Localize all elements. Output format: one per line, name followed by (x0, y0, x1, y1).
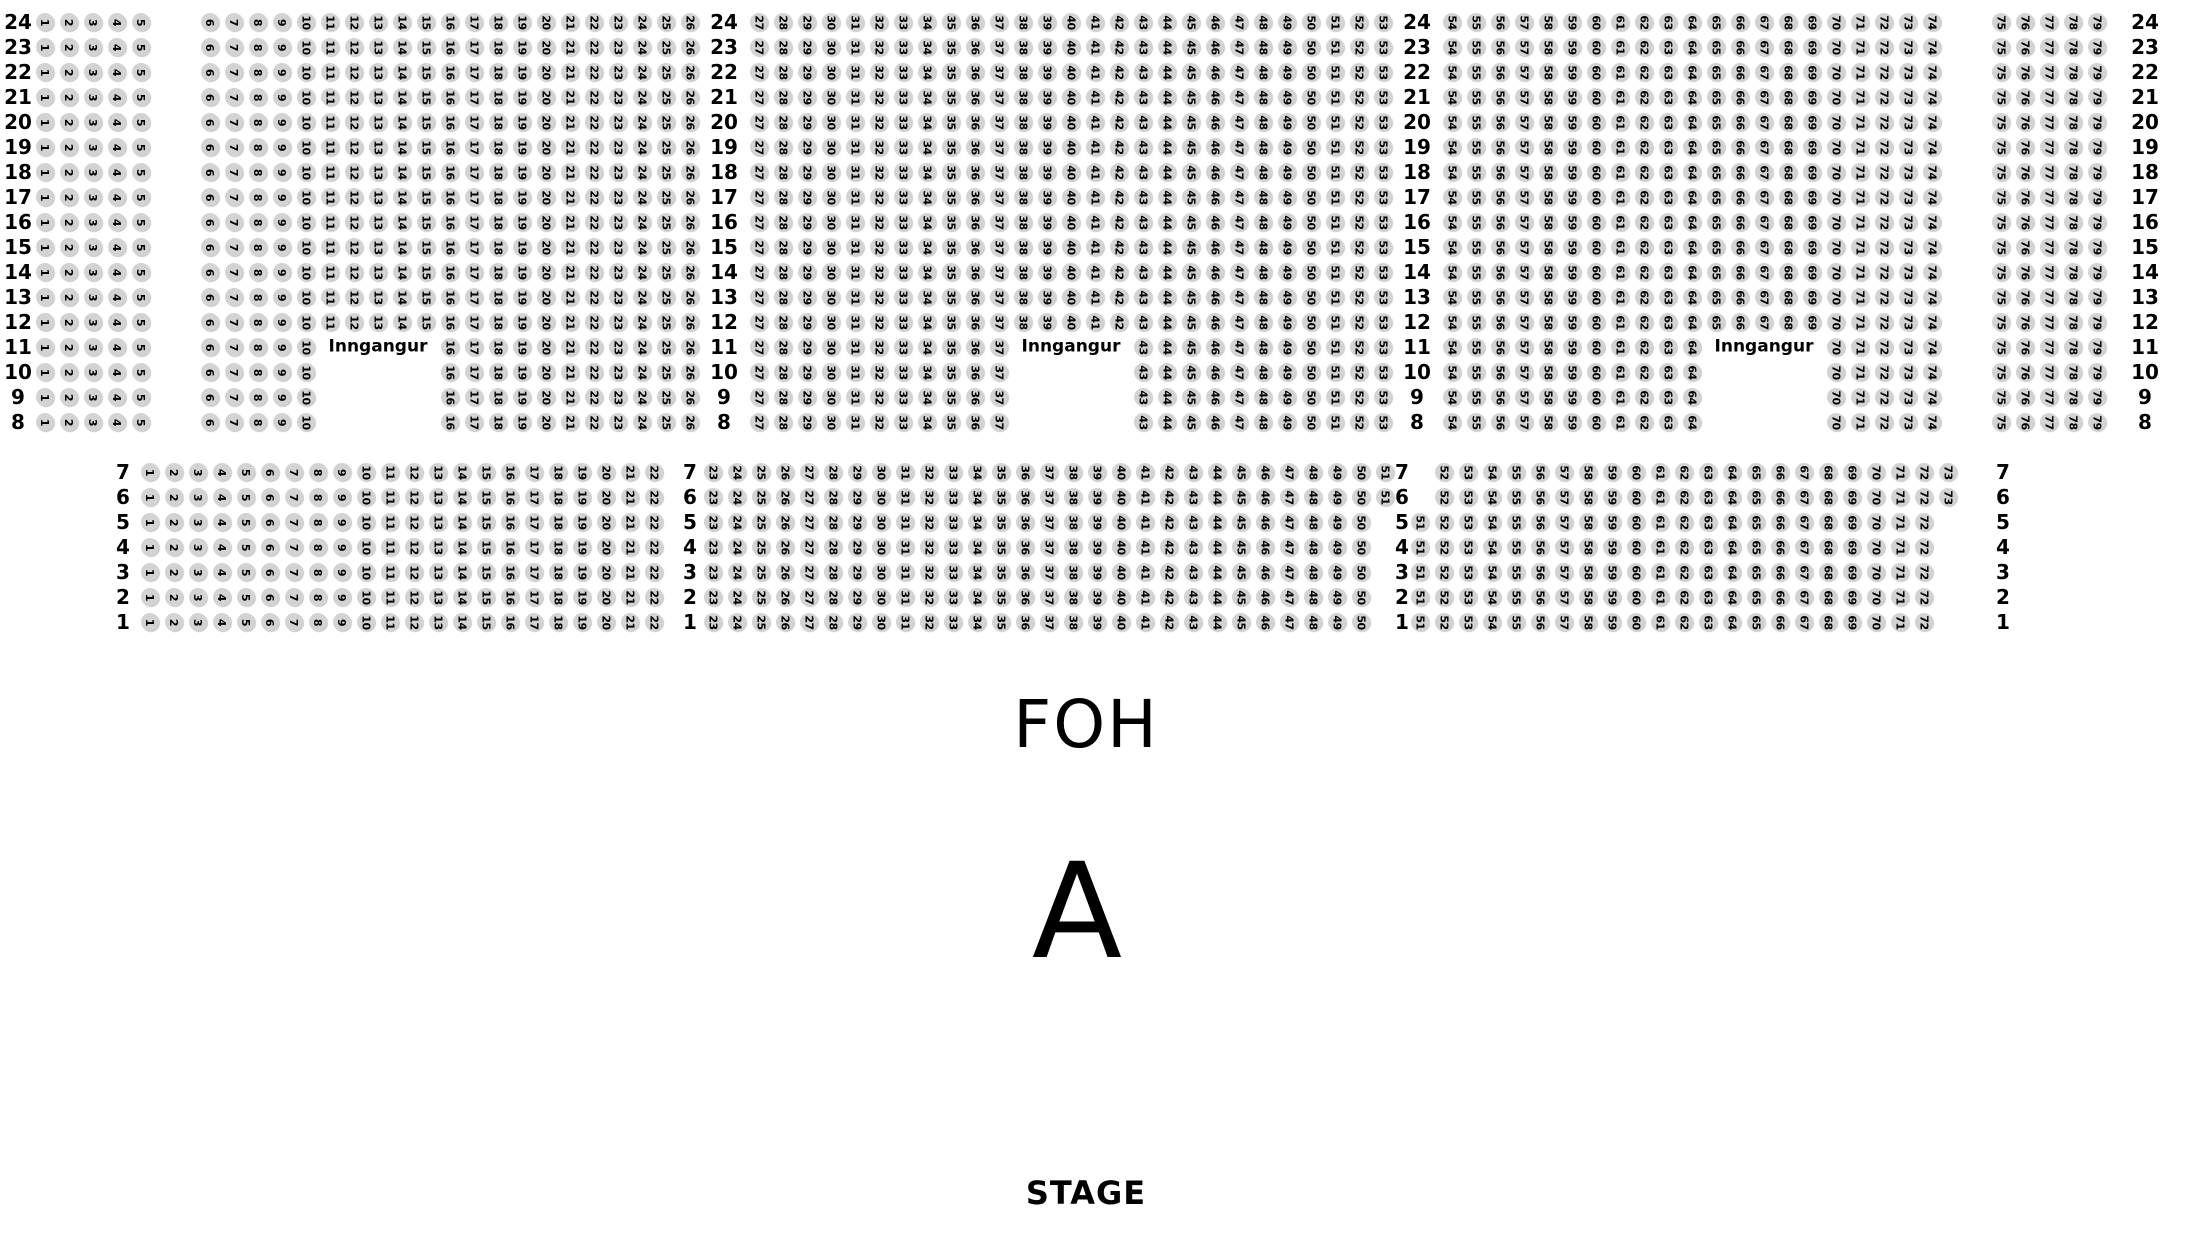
seat[interactable]: 41 (1136, 463, 1154, 481)
seat[interactable]: 65 (1747, 588, 1765, 606)
seat[interactable]: 12 (405, 613, 423, 631)
seat[interactable]: 32 (920, 513, 938, 531)
seat[interactable]: 72 (1915, 463, 1933, 481)
seat[interactable]: 64 (1723, 488, 1741, 506)
seat[interactable]: 65 (1747, 513, 1765, 531)
seat[interactable]: 1 (141, 488, 159, 506)
seat[interactable]: 28 (824, 588, 842, 606)
seat[interactable]: 6 (261, 538, 279, 556)
seat[interactable]: 25 (752, 538, 770, 556)
seat[interactable]: 55 (1507, 588, 1525, 606)
seat[interactable]: 17 (525, 588, 543, 606)
seat[interactable]: 54 (1483, 463, 1501, 481)
seat[interactable]: 9 (333, 563, 351, 581)
seat[interactable]: 38 (1064, 513, 1082, 531)
seat[interactable]: 33 (944, 588, 962, 606)
seat[interactable]: 3 (189, 488, 207, 506)
seat[interactable]: 60 (1627, 463, 1645, 481)
seat[interactable]: 25 (752, 463, 770, 481)
seat[interactable]: 31 (896, 488, 914, 506)
seat[interactable]: 8 (309, 488, 327, 506)
seat[interactable]: 62 (1675, 513, 1693, 531)
seat[interactable]: 8 (309, 613, 327, 631)
seat[interactable]: 68 (1819, 488, 1837, 506)
seat[interactable]: 2 (165, 588, 183, 606)
seat[interactable]: 53 (1459, 488, 1477, 506)
seat[interactable]: 61 (1651, 613, 1669, 631)
seat[interactable]: 29 (848, 538, 866, 556)
seat[interactable]: 37 (1040, 513, 1058, 531)
seat[interactable]: 4 (213, 538, 231, 556)
seat[interactable]: 40 (1112, 463, 1130, 481)
seat[interactable]: 57 (1555, 563, 1573, 581)
seat[interactable]: 43 (1184, 563, 1202, 581)
seat[interactable]: 21 (621, 613, 639, 631)
seat[interactable]: 24 (728, 563, 746, 581)
seat[interactable]: 73 (1939, 463, 1957, 481)
seat[interactable]: 44 (1208, 538, 1226, 556)
seat[interactable]: 48 (1304, 463, 1322, 481)
seat[interactable]: 24 (728, 513, 746, 531)
seat[interactable]: 47 (1280, 463, 1298, 481)
seat[interactable]: 39 (1088, 588, 1106, 606)
seat[interactable]: 58 (1579, 613, 1597, 631)
seat[interactable]: 20 (597, 538, 615, 556)
seat[interactable]: 18 (549, 463, 567, 481)
seat[interactable]: 17 (525, 613, 543, 631)
seat[interactable]: 49 (1328, 613, 1346, 631)
seat[interactable]: 43 (1184, 588, 1202, 606)
seat[interactable]: 58 (1579, 488, 1597, 506)
seat[interactable]: 59 (1603, 563, 1621, 581)
seat[interactable]: 48 (1304, 513, 1322, 531)
seat[interactable]: 60 (1627, 588, 1645, 606)
seat[interactable]: 68 (1819, 538, 1837, 556)
seat[interactable]: 36 (1016, 463, 1034, 481)
seat[interactable]: 16 (501, 513, 519, 531)
seat[interactable]: 5 (237, 588, 255, 606)
seat[interactable]: 72 (1915, 588, 1933, 606)
seat[interactable]: 22 (645, 613, 663, 631)
seat[interactable]: 18 (549, 613, 567, 631)
seat[interactable]: 67 (1795, 613, 1813, 631)
seat[interactable]: 1 (141, 563, 159, 581)
seat[interactable]: 32 (920, 488, 938, 506)
seat[interactable]: 27 (800, 588, 818, 606)
seat[interactable]: 37 (1040, 488, 1058, 506)
seat[interactable]: 45 (1232, 538, 1250, 556)
seat[interactable]: 66 (1771, 538, 1789, 556)
seat[interactable]: 56 (1531, 488, 1549, 506)
seat[interactable]: 64 (1723, 463, 1741, 481)
seat[interactable]: 37 (1040, 563, 1058, 581)
seat[interactable]: 50 (1352, 488, 1370, 506)
seat[interactable]: 21 (621, 463, 639, 481)
seat[interactable]: 12 (405, 488, 423, 506)
seat[interactable]: 27 (800, 463, 818, 481)
seat[interactable]: 59 (1603, 588, 1621, 606)
seat[interactable]: 26 (776, 588, 794, 606)
seat[interactable]: 31 (896, 463, 914, 481)
seat[interactable]: 23 (704, 513, 722, 531)
seat[interactable]: 20 (597, 563, 615, 581)
seat[interactable]: 22 (645, 588, 663, 606)
seat[interactable]: 24 (728, 488, 746, 506)
seat[interactable]: 5 (237, 513, 255, 531)
seat[interactable]: 42 (1160, 563, 1178, 581)
seat[interactable]: 28 (824, 613, 842, 631)
seat[interactable]: 72 (1915, 538, 1933, 556)
seat[interactable]: 52 (1435, 513, 1453, 531)
seat[interactable]: 36 (1016, 538, 1034, 556)
seat[interactable]: 33 (944, 488, 962, 506)
seat[interactable]: 23 (704, 588, 722, 606)
seat[interactable]: 50 (1352, 613, 1370, 631)
seat[interactable]: 66 (1771, 588, 1789, 606)
seat[interactable]: 22 (645, 563, 663, 581)
seat[interactable]: 48 (1304, 613, 1322, 631)
seat[interactable]: 62 (1675, 538, 1693, 556)
seat[interactable]: 67 (1795, 588, 1813, 606)
seat[interactable]: 47 (1280, 588, 1298, 606)
seat[interactable]: 31 (896, 563, 914, 581)
seat[interactable]: 45 (1232, 613, 1250, 631)
seat[interactable]: 50 (1352, 563, 1370, 581)
seat[interactable]: 41 (1136, 488, 1154, 506)
seat[interactable]: 28 (824, 513, 842, 531)
seat[interactable]: 18 (549, 513, 567, 531)
seat[interactable]: 53 (1459, 538, 1477, 556)
seat[interactable]: 10 (357, 538, 375, 556)
seat[interactable]: 6 (261, 588, 279, 606)
seat[interactable]: 69 (1843, 463, 1861, 481)
seat[interactable]: 9 (333, 588, 351, 606)
seat[interactable]: 9 (333, 538, 351, 556)
seat[interactable]: 43 (1184, 513, 1202, 531)
seat[interactable]: 59 (1603, 513, 1621, 531)
seat[interactable]: 35 (992, 613, 1010, 631)
seat[interactable]: 40 (1112, 613, 1130, 631)
seat[interactable]: 28 (824, 563, 842, 581)
seat[interactable]: 28 (824, 488, 842, 506)
seat[interactable]: 21 (621, 538, 639, 556)
seat[interactable]: 65 (1747, 538, 1765, 556)
seat[interactable]: 63 (1699, 488, 1717, 506)
seat[interactable]: 32 (920, 563, 938, 581)
seat[interactable]: 27 (800, 513, 818, 531)
seat[interactable]: 45 (1232, 463, 1250, 481)
seat[interactable]: 14 (453, 613, 471, 631)
seat[interactable]: 43 (1184, 463, 1202, 481)
seat[interactable]: 38 (1064, 488, 1082, 506)
seat[interactable]: 51 (1411, 513, 1429, 531)
seat[interactable]: 6 (261, 488, 279, 506)
seat[interactable]: 60 (1627, 513, 1645, 531)
seat[interactable]: 21 (621, 563, 639, 581)
seat[interactable]: 71 (1891, 563, 1909, 581)
seat[interactable]: 57 (1555, 588, 1573, 606)
seat[interactable]: 28 (824, 538, 842, 556)
seat[interactable]: 6 (261, 563, 279, 581)
seat[interactable]: 7 (285, 613, 303, 631)
seat[interactable]: 58 (1579, 563, 1597, 581)
seat[interactable]: 49 (1328, 538, 1346, 556)
seat[interactable]: 40 (1112, 588, 1130, 606)
seat[interactable]: 23 (704, 538, 722, 556)
seat[interactable]: 45 (1232, 488, 1250, 506)
seat[interactable]: 37 (1040, 538, 1058, 556)
seat[interactable]: 62 (1675, 563, 1693, 581)
seat[interactable]: 52 (1435, 588, 1453, 606)
seat[interactable]: 33 (944, 513, 962, 531)
seat[interactable]: 16 (501, 538, 519, 556)
seat[interactable]: 69 (1843, 613, 1861, 631)
seat[interactable]: 33 (944, 463, 962, 481)
seat[interactable]: 16 (501, 563, 519, 581)
seat[interactable]: 72 (1915, 513, 1933, 531)
seat[interactable]: 39 (1088, 563, 1106, 581)
seat[interactable]: 70 (1867, 563, 1885, 581)
seat[interactable]: 35 (992, 588, 1010, 606)
seat[interactable]: 50 (1352, 463, 1370, 481)
seat[interactable]: 20 (597, 513, 615, 531)
seat[interactable]: 42 (1160, 513, 1178, 531)
seat[interactable]: 67 (1795, 513, 1813, 531)
seat[interactable]: 5 (237, 613, 255, 631)
seat[interactable]: 30 (872, 538, 890, 556)
seat[interactable]: 7 (285, 588, 303, 606)
seat[interactable]: 56 (1531, 588, 1549, 606)
seat[interactable]: 30 (872, 563, 890, 581)
seat[interactable]: 56 (1531, 538, 1549, 556)
seat[interactable]: 4 (213, 513, 231, 531)
seat[interactable]: 11 (381, 463, 399, 481)
seat[interactable]: 66 (1771, 613, 1789, 631)
seat[interactable]: 3 (189, 588, 207, 606)
seat[interactable]: 45 (1232, 513, 1250, 531)
seat[interactable]: 13 (429, 463, 447, 481)
seat[interactable]: 2 (165, 463, 183, 481)
seat[interactable]: 13 (429, 563, 447, 581)
seat[interactable]: 39 (1088, 613, 1106, 631)
seat[interactable]: 33 (944, 563, 962, 581)
seat[interactable]: 11 (381, 588, 399, 606)
seat[interactable]: 46 (1256, 488, 1274, 506)
seat[interactable]: 22 (645, 488, 663, 506)
seat[interactable]: 54 (1483, 538, 1501, 556)
seat[interactable]: 60 (1627, 563, 1645, 581)
seat[interactable]: 20 (597, 588, 615, 606)
seat[interactable]: 35 (992, 513, 1010, 531)
seat[interactable]: 72 (1915, 613, 1933, 631)
seat[interactable]: 2 (165, 488, 183, 506)
seat[interactable]: 4 (213, 488, 231, 506)
seat[interactable]: 9 (333, 613, 351, 631)
seat[interactable]: 30 (872, 463, 890, 481)
seat[interactable]: 60 (1627, 488, 1645, 506)
seat[interactable]: 47 (1280, 538, 1298, 556)
seat[interactable]: 70 (1867, 538, 1885, 556)
seat[interactable]: 9 (333, 488, 351, 506)
seat[interactable]: 5 (237, 538, 255, 556)
seat[interactable]: 9 (333, 463, 351, 481)
seat[interactable]: 31 (896, 513, 914, 531)
seat[interactable]: 61 (1651, 563, 1669, 581)
seat[interactable]: 14 (453, 538, 471, 556)
seat[interactable]: 17 (525, 513, 543, 531)
seat[interactable]: 31 (896, 588, 914, 606)
seat[interactable]: 46 (1256, 613, 1274, 631)
seat[interactable]: 36 (1016, 588, 1034, 606)
seat[interactable]: 65 (1747, 463, 1765, 481)
seat[interactable]: 71 (1891, 513, 1909, 531)
seat[interactable]: 20 (597, 488, 615, 506)
seat[interactable]: 57 (1555, 613, 1573, 631)
seat[interactable]: 18 (549, 588, 567, 606)
seat[interactable]: 12 (405, 538, 423, 556)
seat[interactable]: 66 (1771, 513, 1789, 531)
seat[interactable]: 46 (1256, 463, 1274, 481)
seat[interactable]: 1 (141, 588, 159, 606)
seat[interactable]: 26 (776, 563, 794, 581)
seat[interactable]: 10 (357, 488, 375, 506)
seat[interactable]: 62 (1675, 488, 1693, 506)
seat[interactable]: 10 (357, 613, 375, 631)
seat[interactable]: 34 (968, 588, 986, 606)
seat[interactable]: 53 (1459, 613, 1477, 631)
seat[interactable]: 38 (1064, 538, 1082, 556)
seat[interactable]: 3 (189, 613, 207, 631)
seat[interactable]: 4 (213, 563, 231, 581)
seat[interactable]: 26 (776, 538, 794, 556)
seat[interactable]: 34 (968, 488, 986, 506)
seat[interactable]: 8 (309, 463, 327, 481)
seat[interactable]: 7 (285, 538, 303, 556)
seat[interactable]: 30 (872, 488, 890, 506)
seat[interactable]: 11 (381, 513, 399, 531)
seat[interactable]: 51 (1411, 563, 1429, 581)
seat[interactable]: 49 (1328, 488, 1346, 506)
seat[interactable]: 25 (752, 488, 770, 506)
seat[interactable]: 68 (1819, 513, 1837, 531)
seat[interactable]: 3 (189, 538, 207, 556)
seat[interactable]: 69 (1843, 488, 1861, 506)
seat[interactable]: 48 (1304, 488, 1322, 506)
seat[interactable]: 51 (1376, 488, 1394, 506)
seat[interactable]: 11 (381, 613, 399, 631)
seat[interactable]: 17 (525, 563, 543, 581)
seat[interactable]: 58 (1579, 513, 1597, 531)
seat[interactable]: 32 (920, 613, 938, 631)
seat[interactable]: 1 (141, 613, 159, 631)
seat[interactable]: 57 (1555, 538, 1573, 556)
seat[interactable]: 51 (1376, 463, 1394, 481)
seat[interactable]: 33 (944, 613, 962, 631)
seat[interactable]: 26 (776, 488, 794, 506)
seat[interactable]: 49 (1328, 563, 1346, 581)
seat[interactable]: 69 (1843, 588, 1861, 606)
seat[interactable]: 1 (141, 463, 159, 481)
seat[interactable]: 55 (1507, 613, 1525, 631)
seat[interactable]: 65 (1747, 563, 1765, 581)
seat[interactable]: 23 (704, 463, 722, 481)
seat[interactable]: 3 (189, 463, 207, 481)
seat[interactable]: 32 (920, 538, 938, 556)
seat[interactable]: 27 (800, 538, 818, 556)
seat[interactable]: 37 (1040, 613, 1058, 631)
seat[interactable]: 19 (573, 563, 591, 581)
seat[interactable]: 1 (141, 513, 159, 531)
seat[interactable]: 39 (1088, 513, 1106, 531)
seat[interactable]: 17 (525, 538, 543, 556)
seat[interactable]: 22 (645, 538, 663, 556)
seat[interactable]: 64 (1723, 588, 1741, 606)
seat[interactable]: 23 (704, 613, 722, 631)
seat[interactable]: 64 (1723, 538, 1741, 556)
seat[interactable]: 39 (1088, 488, 1106, 506)
seat[interactable]: 15 (477, 463, 495, 481)
seat[interactable]: 70 (1867, 513, 1885, 531)
seat[interactable]: 62 (1675, 588, 1693, 606)
seat[interactable]: 18 (549, 563, 567, 581)
seat[interactable]: 42 (1160, 488, 1178, 506)
seat[interactable]: 50 (1352, 513, 1370, 531)
seat[interactable]: 24 (728, 538, 746, 556)
seat[interactable]: 70 (1867, 613, 1885, 631)
seat[interactable]: 68 (1819, 588, 1837, 606)
seat[interactable]: 63 (1699, 513, 1717, 531)
seat[interactable]: 68 (1819, 563, 1837, 581)
seat[interactable]: 7 (285, 488, 303, 506)
seat[interactable]: 21 (621, 488, 639, 506)
seat[interactable]: 59 (1603, 488, 1621, 506)
seat[interactable]: 24 (728, 463, 746, 481)
seat[interactable]: 43 (1184, 488, 1202, 506)
seat[interactable]: 25 (752, 613, 770, 631)
seat[interactable]: 25 (752, 588, 770, 606)
seat[interactable]: 40 (1112, 538, 1130, 556)
seat[interactable]: 67 (1795, 538, 1813, 556)
seat[interactable]: 46 (1256, 538, 1274, 556)
seat[interactable]: 19 (573, 538, 591, 556)
seat[interactable]: 3 (189, 513, 207, 531)
seat[interactable]: 19 (573, 613, 591, 631)
seat[interactable]: 55 (1507, 563, 1525, 581)
seat[interactable]: 54 (1483, 513, 1501, 531)
seat[interactable]: 27 (800, 563, 818, 581)
seat[interactable]: 47 (1280, 563, 1298, 581)
seat[interactable]: 49 (1328, 463, 1346, 481)
seat[interactable]: 44 (1208, 513, 1226, 531)
seat[interactable]: 57 (1555, 463, 1573, 481)
seat[interactable]: 60 (1627, 538, 1645, 556)
seat[interactable]: 56 (1531, 513, 1549, 531)
seat[interactable]: 21 (621, 513, 639, 531)
seat[interactable]: 62 (1675, 463, 1693, 481)
seat[interactable]: 71 (1891, 488, 1909, 506)
seat[interactable]: 2 (165, 613, 183, 631)
seat[interactable]: 44 (1208, 563, 1226, 581)
seat[interactable]: 32 (920, 588, 938, 606)
seat[interactable]: 20 (597, 613, 615, 631)
seat[interactable]: 58 (1579, 588, 1597, 606)
seat[interactable]: 29 (848, 563, 866, 581)
seat[interactable]: 38 (1064, 463, 1082, 481)
seat[interactable]: 30 (872, 588, 890, 606)
seat[interactable]: 36 (1016, 488, 1034, 506)
seat[interactable]: 69 (1843, 538, 1861, 556)
seat[interactable]: 59 (1603, 463, 1621, 481)
